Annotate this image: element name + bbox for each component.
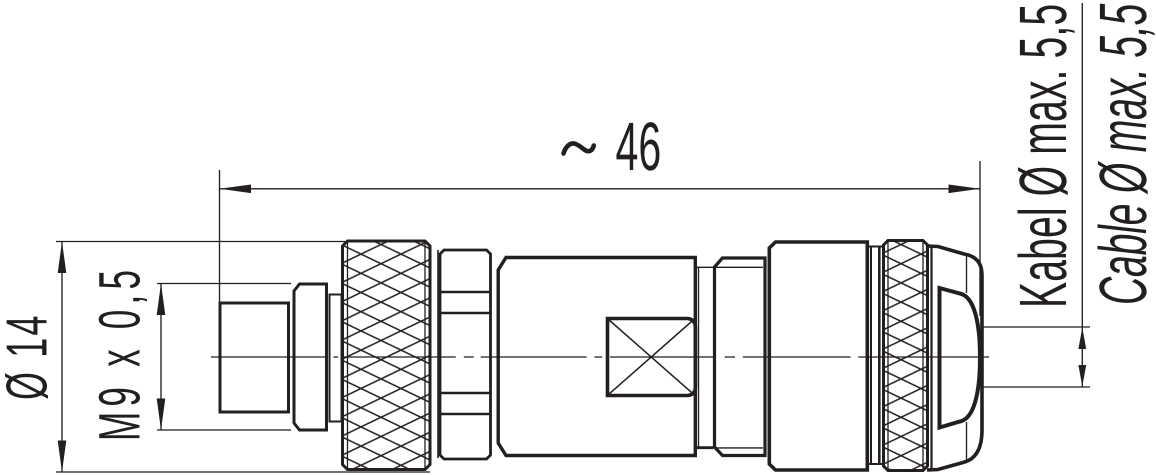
- svg-text:M9 x 0,5: M9 x 0,5: [88, 270, 153, 441]
- svg-text:Ø 14: Ø 14: [0, 316, 60, 400]
- svg-text:Kabel Ø max. 5,5: Kabel Ø max. 5,5: [1006, 4, 1081, 308]
- svg-text:46: 46: [616, 108, 662, 185]
- svg-text:Cable Ø max. 5,5: Cable Ø max. 5,5: [1086, 3, 1156, 305]
